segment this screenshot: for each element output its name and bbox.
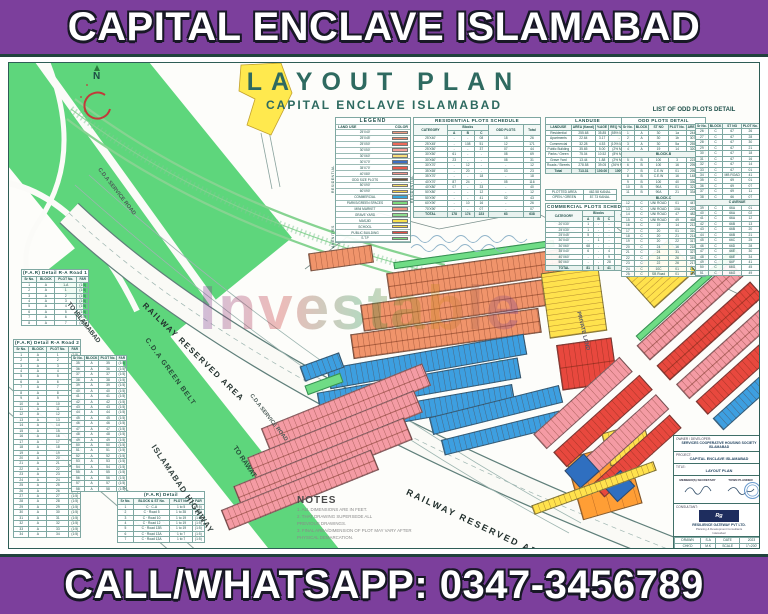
legend-title: LEGEND (336, 118, 410, 125)
legend-col-color: COLOR (395, 125, 408, 129)
legend-swatch (392, 201, 408, 205)
landuse-table: LANDUSELANDUSEAREA (Kanal)%AGEREQ %AGERe… (545, 117, 617, 174)
far-detail-table-road1: (F.A.R) Detail R-A Road 1Sr No.BLOCKPLOT… (21, 269, 83, 326)
signature-left: MEMBER(S) SECRETARY (676, 477, 719, 502)
residential-block-yellow (541, 265, 608, 338)
layout-plan-map: LAYOUT PLAN CAPITAL ENCLAVE ISLAMABAD N … (8, 62, 760, 549)
legend-swatch (392, 178, 408, 182)
consultant-label: CONSULTANT: (676, 505, 760, 509)
signature-right-label: TOWN PLANNER (719, 478, 760, 482)
signature-left-scribble (683, 485, 713, 495)
consultant-logo: Rg (699, 510, 739, 522)
flyer: CAPITAL ENCLAVE ISLAMABAD (0, 0, 768, 614)
header-banner: CAPITAL ENCLAVE ISLAMABAD (0, 0, 768, 54)
residential-schedule-side-label: RESIDENTIAL (410, 175, 414, 203)
legend-swatch (392, 207, 408, 211)
odd-plots-heading: LIST OF ODD PLOTS DETAIL (621, 107, 760, 113)
note-item: 2. THAT DRAWING SUPERSEDE ALL (297, 513, 427, 520)
legend-swatch (392, 231, 408, 235)
legend-swatch (392, 148, 408, 152)
far-detail-table-road2-cont: Sr No.BLOCKPLOT No.FAR35A35(1:5)36A36(1:… (71, 355, 123, 492)
legend-swatch (392, 190, 408, 194)
owner-row: OWNER / DEVELOPER: SERVICES COOPERATIVE … (674, 436, 760, 452)
note-item: PREVIOUS DRAWINGS. (297, 520, 427, 527)
legend-swatch (392, 213, 408, 217)
signatures-row: MEMBER(S) SECRETARY TOWN PLANNER (674, 476, 760, 504)
footer-banner: CALL/WHATSAPP: 0347-3456789 (0, 557, 768, 614)
landuse-summary-table: PLOTTED AREA462.58 KANALOPEN / GREEN87.7… (545, 189, 617, 201)
odd-plots-table-left: ODD PLOTS DETAILSr No.BLOCKST NOPLOT No.… (621, 117, 691, 277)
project-value: CAPITAL ENCLAVE ISLAMABAD (676, 457, 760, 462)
title-block: OWNER / DEVELOPER: SERVICES COOPERATIVE … (673, 435, 760, 549)
map-subtitle: CAPITAL ENCLAVE ISLAMABAD (247, 98, 521, 112)
legend-swatch (392, 137, 408, 141)
far-detail-table-road2: (F.A.R) Detail R-A Road 2Sr No.BLOCKPLOT… (13, 339, 69, 538)
legend-swatch (392, 184, 408, 188)
legend-group-residential: RESIDENTIAL (331, 165, 335, 193)
north-arrow-icon: N (93, 65, 100, 82)
legend-swatch (392, 219, 408, 223)
handwritten-note (405, 231, 555, 257)
notes: NOTES 1. ALL DIMENSIONS ARE IN FEET.2. T… (297, 495, 427, 541)
legend-swatch (392, 172, 408, 176)
note-item: 1. ALL DIMENSIONS ARE IN FEET. (297, 506, 427, 513)
north-label: N (93, 71, 100, 82)
title-block-grid: DRAWNS.ADATE2023CHK'DM.KSCALE1"=200'APP'… (674, 537, 760, 549)
legend-col-landuse: LAND USE (338, 125, 395, 129)
legend-row: S.T.P (336, 236, 410, 242)
header-title: CAPITAL ENCLAVE ISLAMABAD (68, 5, 701, 50)
odd-plots-table-right: Sr No.BLOCKST NOPLOT No.AREA (sft)26C672… (695, 123, 760, 276)
note-item: PHYSICAL DEMARCATION. (297, 534, 427, 541)
legend-swatch (392, 154, 408, 158)
owner-value: SERVICES COOPERATIVE HOUSING SOCIETY ISL… (676, 441, 760, 450)
approval-stamp-icon (744, 482, 760, 499)
map-title-group: LAYOUT PLAN CAPITAL ENCLAVE ISLAMABAD (247, 68, 521, 112)
commercial-plots-schedule-table: COMMERCIAL PLOTS SCHEDULECATEGORYBlocksT… (545, 203, 617, 271)
legend-swatch (392, 142, 408, 146)
legend-swatch (392, 237, 408, 241)
footer-phone: CALL/WHATSAPP: 0347-3456789 (64, 563, 704, 608)
legend-rows: 25'X40'25'X45'25'X50'30'X50'30'X60'30'X7… (336, 130, 410, 242)
title-value: LAYOUT PLAN (676, 469, 760, 474)
header-divider (0, 54, 768, 57)
consultant-sub2: Islamabad (676, 531, 760, 535)
signature-left-label: MEMBER(S) SECRETARY (676, 478, 719, 482)
legend-swatch (392, 166, 408, 170)
map-title: LAYOUT PLAN (247, 68, 521, 97)
legend: LEGEND LAND USE COLOR 25'X40'25'X45'25'X… (335, 117, 411, 243)
residential-plots-schedule-table: RESIDENTIAL PLOTS SCHEDULECATEGORYBlocks… (413, 117, 541, 218)
legend-group-amenities: AMENITIES (331, 225, 335, 248)
legend-swatch (392, 225, 408, 229)
note-item: 3. FINAL AREA/DIMENSION OF PLOT MAY VARY… (297, 527, 427, 534)
legend-swatch (392, 160, 408, 164)
title-row: TITLE: LAYOUT PLAN (674, 464, 760, 476)
project-row: PROJECT: CAPITAL ENCLAVE ISLAMABAD (674, 452, 760, 464)
consultant-row: CONSULTANT: Rg RESILIENCE GATEWAY PVT LT… (674, 504, 760, 537)
legend-swatch (392, 195, 408, 199)
legend-swatch (392, 131, 408, 135)
notes-items: 1. ALL DIMENSIONS ARE IN FEET.2. THAT DR… (297, 506, 427, 541)
